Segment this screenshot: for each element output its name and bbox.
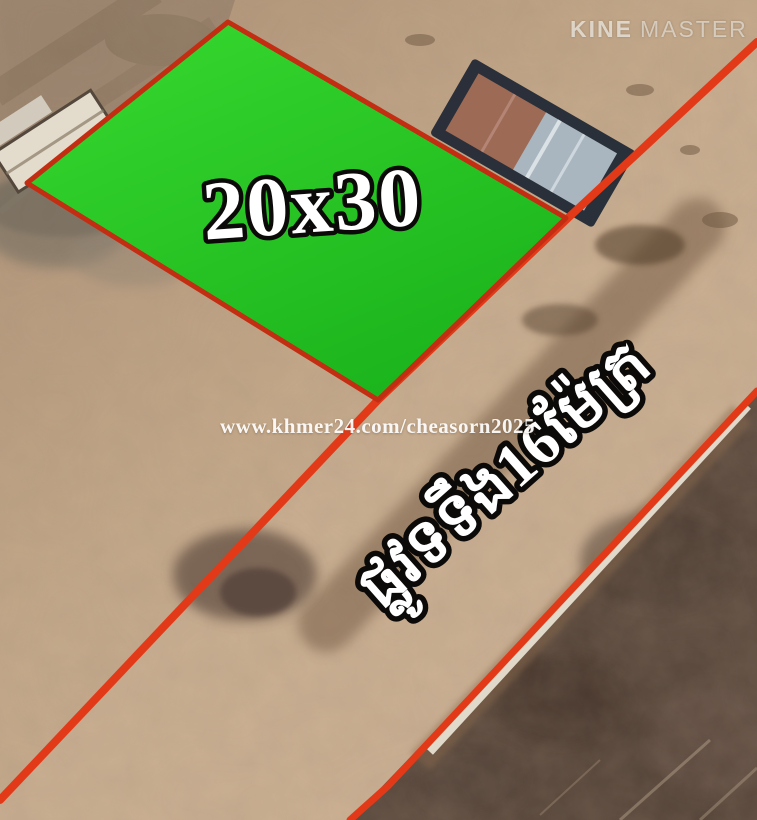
road-dirt-blob-2 [522,304,598,336]
roadside-bush-core [220,568,296,616]
kinemaster-watermark-kine: KINE [570,16,633,42]
road-dirt-blob-1 [595,225,685,265]
kinemaster-watermark: KINEMASTER [570,16,748,43]
satellite-scene: 20x30 ផ្លូវទទឹង16ម៉ែត្រ [0,0,757,820]
kinemaster-watermark-master: MASTER [640,16,748,42]
plot-size-label: 20x30 [199,150,425,258]
khmer24-watermark: www.khmer24.com/cheasorn2025 [220,414,535,439]
land-listing-image: 20x30 ផ្លូវទទឹង16ម៉ែត្រ KINEMASTER www.k… [0,0,757,820]
